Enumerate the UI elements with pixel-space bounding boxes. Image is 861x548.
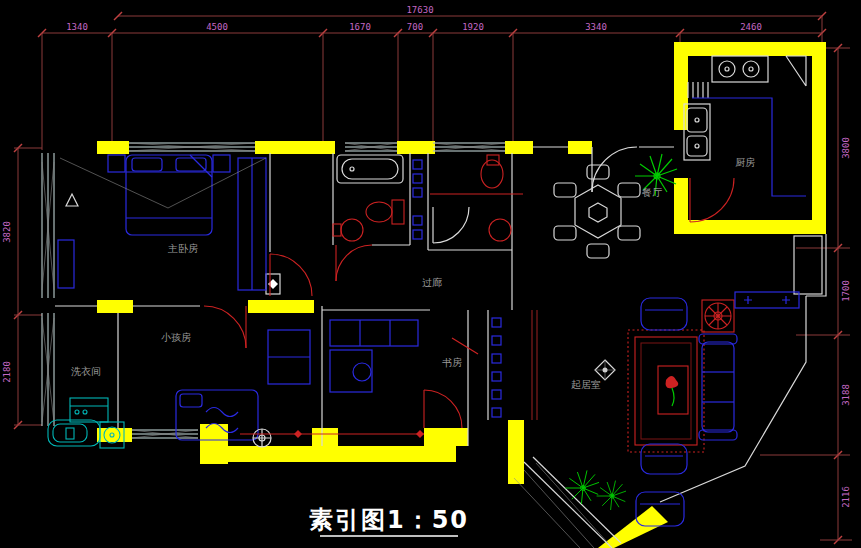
shaft-column-part	[492, 390, 501, 399]
room-label-study: 书房	[442, 357, 462, 368]
master-bedroom-furniture-part	[108, 155, 125, 172]
electrical-wiring-part	[416, 430, 424, 438]
cad-viewport[interactable]: 17630 1340 4500 1670 700 1920 3340 2460	[0, 0, 861, 548]
dimension-label: 1340	[66, 22, 88, 32]
kitchen-fixtures	[684, 56, 806, 196]
shaft-column-part	[413, 216, 422, 225]
floor-plan-canvas: 17630 1340 4500 1670 700 1920 3340 2460	[0, 0, 861, 548]
kitchen-fixtures-part	[687, 108, 707, 132]
dimension-label: 3800	[841, 137, 851, 159]
interior-walls-part	[794, 236, 822, 294]
dish-rack	[688, 82, 708, 98]
corner-shelf	[786, 56, 806, 86]
dimension-label: 2116	[841, 486, 851, 508]
wall-segments-part	[568, 141, 592, 154]
ceiling-fan-icon	[253, 429, 271, 447]
wall-segments-part	[674, 42, 688, 130]
shaft-column-part	[413, 230, 422, 239]
shaft-column	[492, 318, 501, 417]
wall-segments-part	[248, 300, 314, 313]
shaft-column-part	[492, 372, 501, 381]
study-furniture-part	[330, 320, 418, 346]
master-bedroom-furniture-part	[176, 158, 206, 171]
plant-icon-part	[597, 481, 626, 510]
wall-segments-part	[424, 428, 468, 446]
doors-part	[204, 306, 246, 348]
top-dimension-chain: 17630 1340 4500 1670 700 1920 3340 2460	[38, 5, 826, 150]
study-furniture-part	[353, 363, 371, 381]
wall-segments	[97, 42, 826, 548]
dimension-label: 2460	[740, 22, 762, 32]
living-room-furniture-part	[672, 388, 674, 406]
entry-stairs-part	[536, 463, 608, 543]
kids-room-furniture	[176, 330, 310, 447]
dimension-label: 700	[407, 22, 423, 32]
dimension-label: 1670	[349, 22, 371, 32]
wall-segments-part	[97, 141, 129, 154]
room-label-master-bedroom: 主卧房	[167, 243, 198, 254]
master-bedroom-furniture-part	[168, 158, 266, 208]
left-dimension-chain: 3820 2180	[2, 144, 42, 429]
dining-table	[575, 185, 621, 238]
plant-icon	[565, 470, 599, 504]
wall-segments-part	[812, 42, 826, 234]
interior-walls-part	[806, 234, 826, 296]
dimension-label: 3188	[841, 384, 851, 406]
master-bedroom-furniture-part	[126, 155, 212, 235]
dining-set-part	[587, 165, 609, 179]
dining-set-part	[587, 244, 609, 258]
dimension-label-total: 17630	[406, 5, 433, 15]
dimension-label: 1920	[462, 22, 484, 32]
kitchen-fixtures-part	[719, 61, 735, 77]
counter	[692, 98, 806, 196]
study-furniture-part	[452, 338, 478, 354]
living-room-furniture-part	[744, 296, 790, 304]
dining-set	[554, 165, 640, 258]
electrical-wiring-part	[294, 430, 302, 438]
window-symbols	[42, 143, 505, 438]
laundry-fixtures-part	[83, 410, 87, 414]
doors-part	[690, 178, 734, 222]
rug	[628, 330, 704, 452]
shaft-column-part	[413, 188, 422, 197]
wall-segments-part	[228, 446, 456, 462]
entry-stairs-part	[514, 478, 580, 548]
shaft-column	[413, 160, 422, 239]
shaft-column-part	[413, 174, 422, 183]
rose-window-ornament	[702, 300, 734, 332]
master-bedroom-furniture-part	[60, 158, 168, 208]
sink	[489, 219, 511, 241]
armchair	[641, 298, 687, 330]
room-label-dining-room: 餐厅	[642, 187, 662, 198]
master-bedroom-furniture-part	[58, 240, 74, 288]
doors-part	[424, 390, 462, 428]
dining-set-part	[618, 226, 640, 240]
doors-part	[336, 245, 372, 281]
study-furniture-part	[330, 350, 372, 392]
sofa	[702, 342, 734, 432]
flower-decoration	[666, 376, 679, 388]
dimension-label: 3820	[2, 221, 12, 243]
kitchen-fixtures-part	[743, 61, 759, 77]
dimension-label: 1700	[841, 280, 851, 302]
wall-segments-part	[255, 141, 335, 154]
master-bedroom-furniture-part	[132, 158, 162, 171]
study-furniture	[330, 320, 478, 392]
wall-segments-part	[674, 220, 826, 234]
armchair	[641, 444, 687, 474]
toilet	[481, 160, 503, 188]
room-label-living-room: 起居室	[571, 379, 601, 390]
dimension-label: 2180	[2, 361, 12, 383]
drawing-title: 素引图1：50	[309, 506, 469, 536]
compass-symbol-icon	[595, 360, 615, 380]
kids-room-furniture-part	[180, 394, 202, 407]
dining-set-part	[554, 226, 576, 240]
dimension-label: 3340	[585, 22, 607, 32]
shaft-column-part	[492, 354, 501, 363]
bathroom-fixtures-part	[350, 167, 354, 171]
wall-segments-part	[674, 178, 688, 234]
warning-triangle-icon	[66, 194, 78, 206]
shaft-column-part	[492, 318, 501, 327]
dining-set-part	[589, 203, 607, 222]
shaft-column-part	[413, 160, 422, 169]
kitchen-fixtures-part	[749, 67, 753, 71]
laundry-fixtures-part	[66, 428, 74, 439]
shower-door	[433, 207, 469, 243]
compass-symbol-icon-part	[603, 368, 608, 373]
wall-segments-part	[598, 506, 668, 548]
bathroom-fixtures-part	[366, 202, 392, 222]
master-bedroom-furniture	[58, 155, 266, 290]
dining-set-part	[618, 183, 640, 197]
kitchen-fixtures-part	[725, 67, 729, 71]
wall-segments-part	[312, 428, 338, 446]
laundry-fixtures-part	[75, 410, 79, 414]
plant-icon-part	[565, 470, 599, 504]
doors-part	[270, 254, 312, 296]
wall-segments-part	[505, 141, 533, 154]
living-room-furniture-part	[641, 343, 691, 439]
shaft-column-part	[492, 408, 501, 417]
room-label-laundry: 洗衣间	[71, 366, 101, 377]
wall-segments-part	[508, 420, 524, 484]
kitchen-fixtures-part	[695, 118, 699, 122]
wall-segments-part	[397, 141, 435, 154]
kitchen-fixtures-part	[695, 144, 699, 148]
shaft-column-part	[492, 336, 501, 345]
dining-set-part	[554, 183, 576, 197]
drawing-title-text: 素引图1：50	[309, 506, 469, 534]
plant-icon	[597, 481, 626, 510]
wall-segments-part	[674, 42, 826, 56]
kitchen-fixtures-part	[687, 136, 707, 156]
master-bedroom-furniture-part	[213, 155, 230, 172]
bathroom-fixtures-part	[333, 224, 341, 236]
room-label-corridor: 过廊	[422, 277, 442, 288]
room-label-kids-room: 小孩房	[161, 332, 191, 343]
toilet	[392, 200, 404, 224]
sink	[341, 219, 363, 241]
dimension-label: 4500	[206, 22, 228, 32]
wall-segments-part	[97, 300, 133, 313]
interior-walls-part	[660, 296, 806, 502]
room-label-kitchen: 厨房	[735, 157, 755, 168]
